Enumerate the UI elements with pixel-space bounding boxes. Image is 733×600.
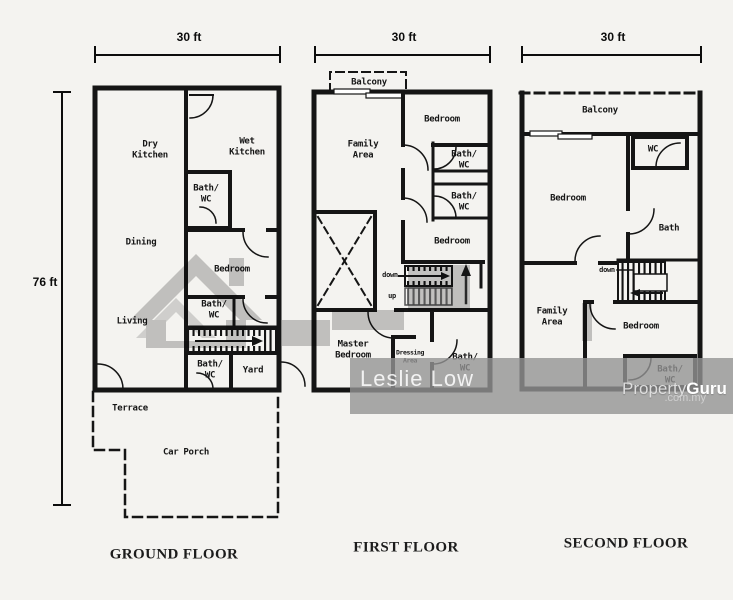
agent-watermark: Leslie Low [352, 366, 482, 392]
watermark-block [582, 303, 592, 341]
watermark-block [332, 310, 404, 330]
watermark-block [282, 320, 330, 346]
floorplan-canvas: 30 ft 30 ft 30 ft 76 ft Dry Kitchen Wet … [0, 0, 733, 600]
house-logo-watermark [0, 0, 733, 600]
watermark-block [408, 265, 470, 311]
brand-domain-watermark: .com.my [650, 392, 706, 404]
